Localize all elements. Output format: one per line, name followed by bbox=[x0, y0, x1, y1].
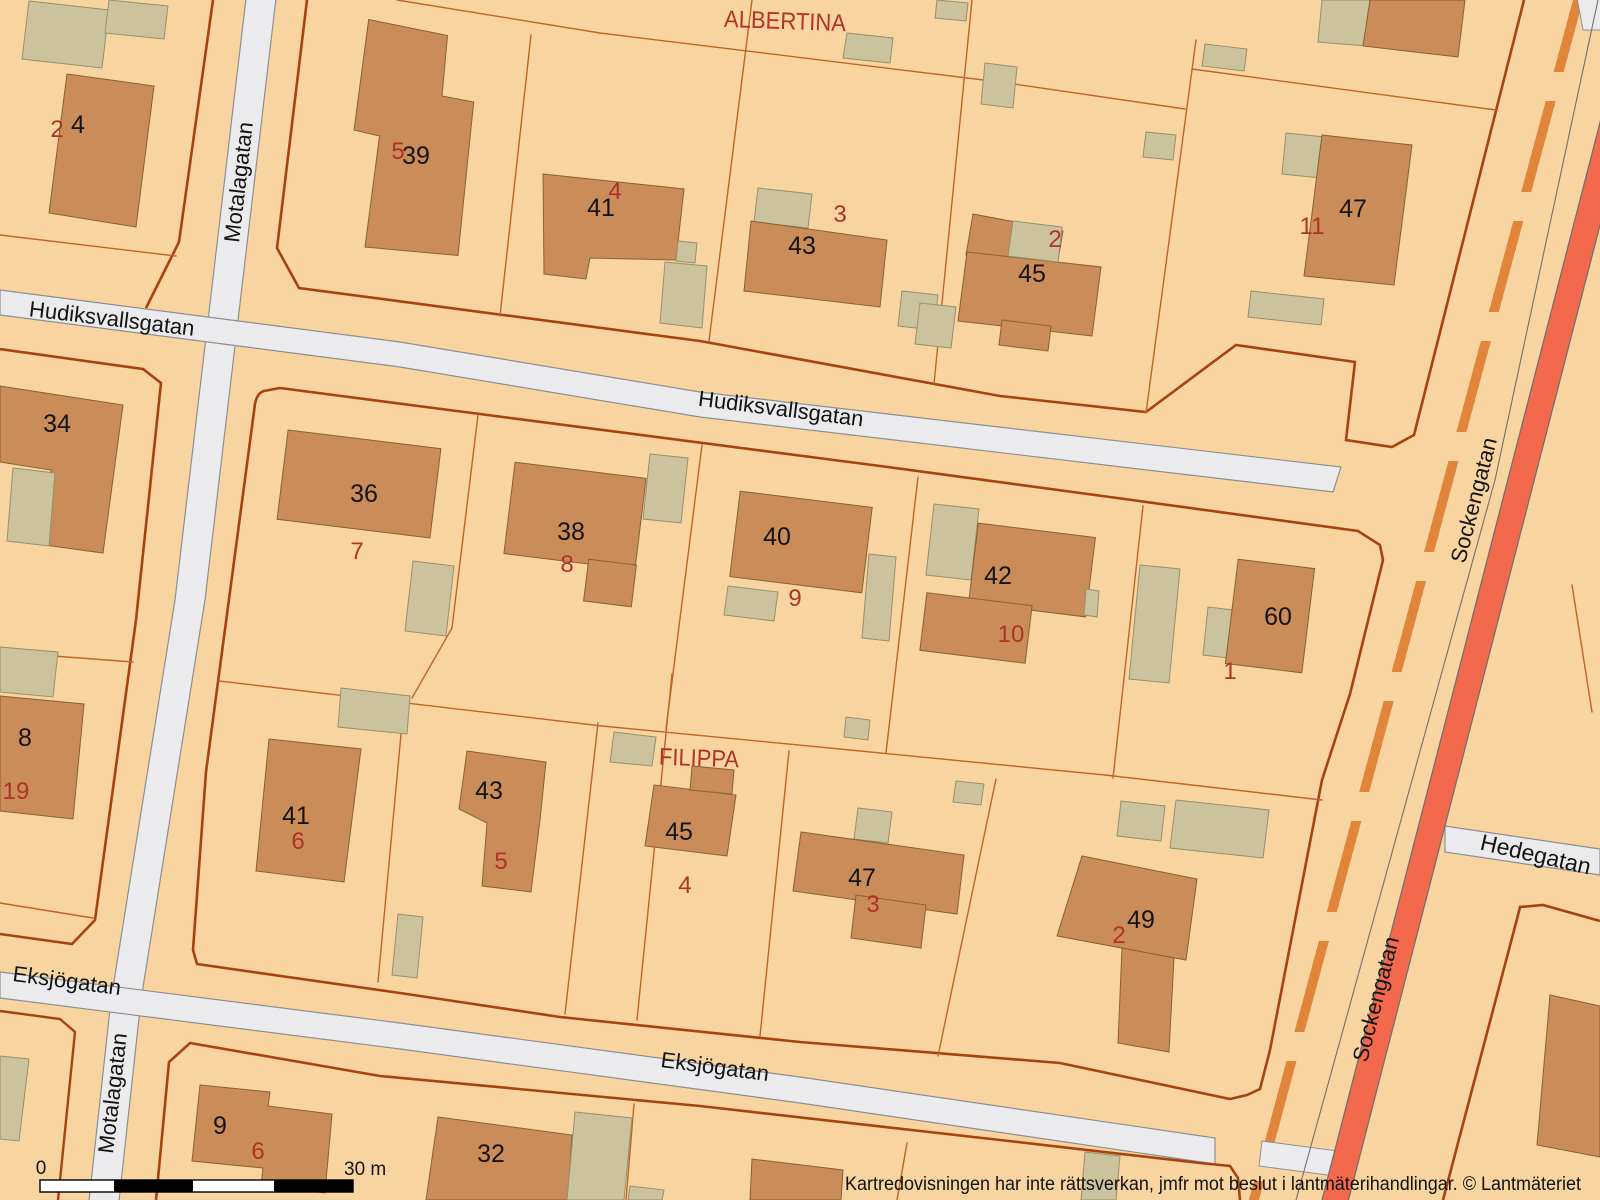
svg-text:7: 7 bbox=[350, 538, 363, 565]
svg-text:45: 45 bbox=[1018, 260, 1046, 288]
svg-text:5: 5 bbox=[391, 138, 404, 165]
svg-text:30 m: 30 m bbox=[344, 1159, 386, 1180]
svg-text:4: 4 bbox=[678, 872, 691, 899]
svg-text:4: 4 bbox=[608, 178, 621, 205]
svg-text:FILIPPA: FILIPPA bbox=[659, 744, 740, 774]
svg-text:9: 9 bbox=[213, 1112, 227, 1140]
svg-text:45: 45 bbox=[665, 818, 693, 846]
svg-text:0: 0 bbox=[36, 1158, 47, 1179]
svg-text:8: 8 bbox=[560, 551, 573, 578]
svg-text:2: 2 bbox=[1112, 922, 1125, 949]
svg-text:43: 43 bbox=[475, 777, 503, 805]
svg-text:3: 3 bbox=[866, 891, 879, 918]
svg-text:40: 40 bbox=[763, 523, 791, 551]
svg-text:47: 47 bbox=[848, 864, 876, 892]
svg-text:2: 2 bbox=[50, 116, 63, 143]
svg-text:32: 32 bbox=[477, 1140, 505, 1168]
svg-text:11: 11 bbox=[1300, 213, 1325, 240]
svg-text:Kartredovisningen har inte rät: Kartredovisningen har inte rättsverkan, … bbox=[845, 1174, 1582, 1195]
svg-text:38: 38 bbox=[557, 518, 585, 546]
svg-text:43: 43 bbox=[788, 232, 816, 260]
svg-text:39: 39 bbox=[402, 142, 430, 170]
svg-text:19: 19 bbox=[3, 778, 30, 805]
svg-text:41: 41 bbox=[282, 802, 310, 830]
svg-text:36: 36 bbox=[350, 480, 378, 508]
svg-text:60: 60 bbox=[1264, 603, 1292, 631]
svg-text:5: 5 bbox=[494, 848, 507, 875]
svg-text:2: 2 bbox=[1048, 226, 1061, 253]
svg-text:47: 47 bbox=[1339, 195, 1367, 223]
svg-text:1: 1 bbox=[1223, 658, 1236, 685]
svg-text:6: 6 bbox=[251, 1138, 264, 1165]
svg-text:ALBERTINA: ALBERTINA bbox=[724, 6, 847, 37]
svg-text:34: 34 bbox=[43, 410, 71, 438]
svg-text:49: 49 bbox=[1127, 906, 1155, 934]
svg-text:10: 10 bbox=[998, 621, 1025, 648]
svg-text:8: 8 bbox=[18, 724, 32, 752]
svg-text:42: 42 bbox=[984, 562, 1012, 590]
svg-text:4: 4 bbox=[71, 111, 85, 139]
svg-text:6: 6 bbox=[291, 828, 304, 855]
svg-text:9: 9 bbox=[788, 585, 801, 612]
svg-text:3: 3 bbox=[833, 201, 846, 228]
